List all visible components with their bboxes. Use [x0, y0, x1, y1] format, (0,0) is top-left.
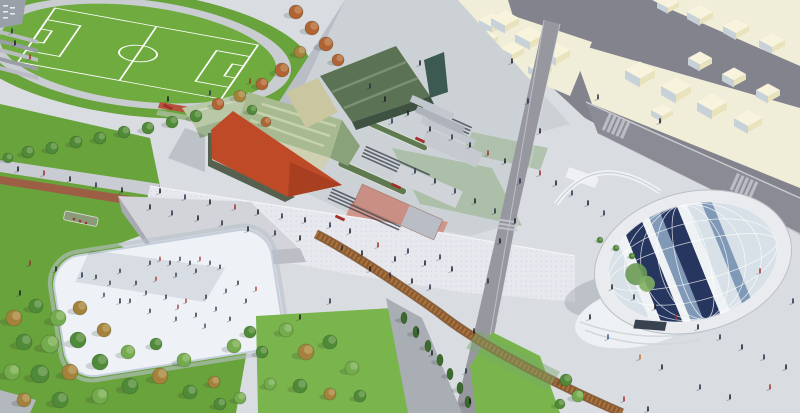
aerial-scene	[0, 0, 800, 413]
masterplan-rendering	[0, 0, 800, 413]
